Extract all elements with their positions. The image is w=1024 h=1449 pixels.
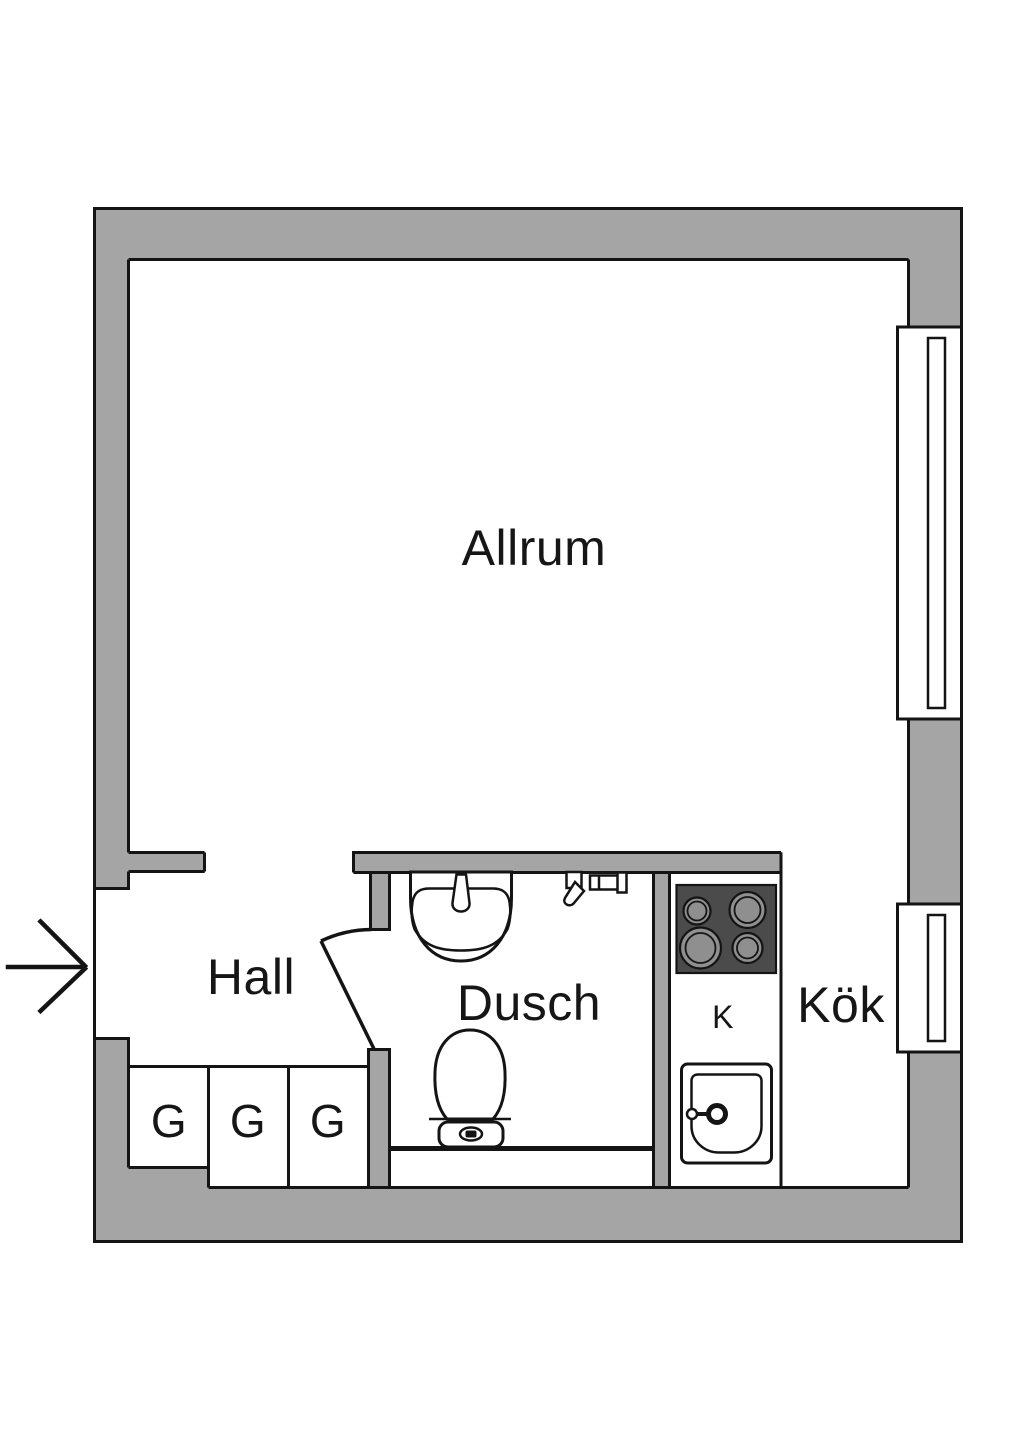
wardrobe-label-3: G [310,1098,346,1144]
room-label-hall: Hall [207,952,295,1002]
room-label-kitchen: Kök [797,980,885,1030]
wall-shower-left-upper [370,873,390,930]
wall-bottom [210,1188,963,1243]
windows [898,327,962,1052]
washbasin-icon [411,872,512,961]
toilet-bowl [435,1030,505,1119]
kitchen-sink-tap-base [687,1109,697,1119]
room-label-shower: Dusch [457,978,601,1028]
floorplan-drawing [0,0,1024,1449]
wall-right-upper [908,260,963,327]
shower-door-leaf [321,941,374,1049]
wall-top [93,207,963,260]
wall-left-lower [93,1037,130,1243]
room-label-living-room: Allrum [462,523,607,573]
wall-right-mid [908,719,963,904]
shower-door-swing-arc [321,930,372,942]
toilet-button-center [466,1131,477,1138]
stove-burner-top-left [684,898,711,925]
wall-shower-kitchen [653,873,670,1189]
window-upper-glass [928,338,945,708]
wall-bottom-left-step [130,1168,210,1243]
wardrobe-label-1: G [151,1098,187,1144]
floorplan-canvas: Allrum Hall Dusch Kök K G G G [0,0,1024,1449]
wall-shower-left-pillar [368,1049,390,1189]
washbasin-tap [452,875,469,912]
kitchen-sink-icon [682,1064,772,1163]
entrance-arrow-icon [8,922,85,1012]
mixer-pipe [590,876,618,890]
stove-icon [677,885,777,973]
wall-left-upper [93,207,130,890]
stove-burner-bottom-right [733,933,763,963]
wardrobe-label-2: G [230,1098,266,1144]
kitchen-sink-tap-knob [709,1106,726,1123]
window-lower-glass [928,915,945,1041]
stove-burner-bottom-left [680,928,721,969]
wall-edges [95,209,962,1242]
shower-door [321,930,374,1050]
stove-burner-top-right [730,892,766,928]
wall-outline-inner [96,260,909,1188]
window-upper [898,327,962,719]
window-lower [898,904,962,1052]
wall-shower-top [353,852,782,873]
wall-right-lower [908,1052,963,1192]
toilet-icon [429,1030,511,1147]
shower-mixer-icon [564,872,626,905]
wall-hall-stub [130,852,205,873]
walls [93,207,963,1243]
wall-outline-outer [95,209,962,1242]
fridge-label: K [712,1001,734,1033]
mixer-pipe-cap [618,873,627,893]
